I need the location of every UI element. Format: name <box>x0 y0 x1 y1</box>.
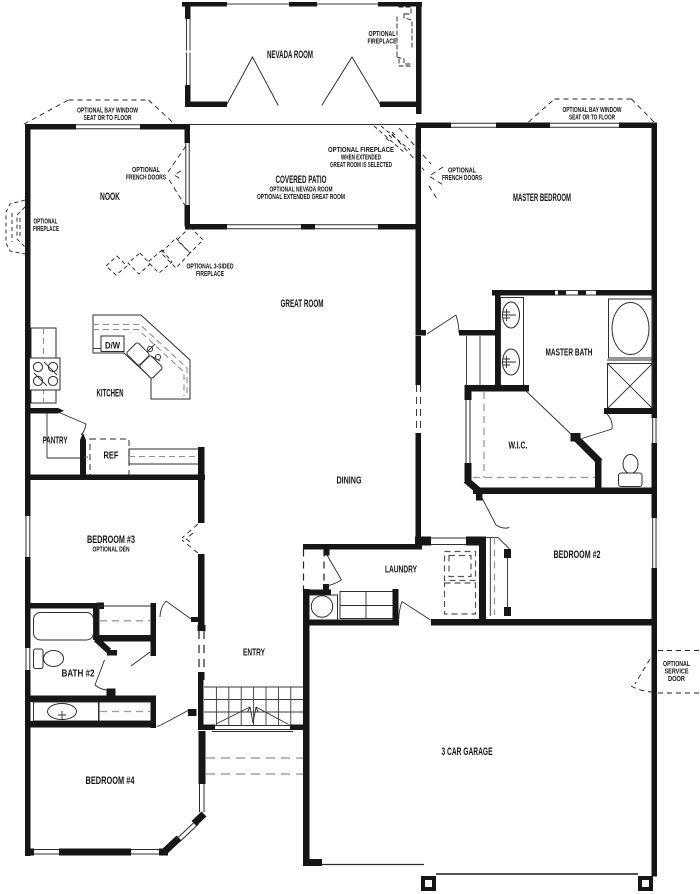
svg-text:W.I.C.: W.I.C. <box>509 441 528 452</box>
svg-text:SERVICE: SERVICE <box>665 669 689 676</box>
svg-text:BATH #2: BATH #2 <box>62 669 95 680</box>
svg-text:NOOK: NOOK <box>100 191 120 203</box>
svg-text:3 CAR GARAGE: 3 CAR GARAGE <box>442 746 493 758</box>
svg-text:OPTIONAL FIREPLACE: OPTIONAL FIREPLACE <box>328 147 394 154</box>
svg-text:LAUNDRY: LAUNDRY <box>385 565 417 576</box>
svg-text:REF: REF <box>104 451 119 462</box>
svg-text:FIREPLACE: FIREPLACE <box>368 39 397 46</box>
svg-text:BEDROOM #4: BEDROOM #4 <box>86 775 136 787</box>
svg-text:FRENCH DOORS: FRENCH DOORS <box>126 175 166 182</box>
svg-text:FRENCH DOORS: FRENCH DOORS <box>442 175 482 182</box>
svg-text:OPTIONAL EXTENDED GREAT ROOM: OPTIONAL EXTENDED GREAT ROOM <box>257 194 345 201</box>
svg-text:SEAT OR TO FLOOR: SEAT OR TO FLOOR <box>84 115 132 122</box>
svg-text:MASTER BATH: MASTER BATH <box>546 348 593 359</box>
svg-text:WHEN EXTENDED: WHEN EXTENDED <box>341 155 381 162</box>
svg-text:PANTRY: PANTRY <box>43 436 68 447</box>
svg-text:D/W: D/W <box>105 341 120 352</box>
svg-text:OPTIONAL BAY WINDOW: OPTIONAL BAY WINDOW <box>563 107 622 114</box>
svg-text:DINING: DINING <box>337 476 362 487</box>
svg-text:GREAT ROOM: GREAT ROOM <box>281 298 324 310</box>
svg-text:OPTIONAL: OPTIONAL <box>34 219 58 226</box>
svg-text:SEAT OR TO FLOOR: SEAT OR TO FLOOR <box>569 115 615 122</box>
svg-text:COVERED PATIO: COVERED PATIO <box>276 174 327 186</box>
svg-text:MASTER BEDROOM: MASTER BEDROOM <box>513 192 571 204</box>
svg-text:NEVADA ROOM: NEVADA ROOM <box>267 49 313 61</box>
svg-text:OPTIONAL: OPTIONAL <box>663 661 691 668</box>
svg-text:FIREPLACE: FIREPLACE <box>33 226 59 233</box>
svg-text:OPTIONAL 3-SIDED: OPTIONAL 3-SIDED <box>187 264 234 271</box>
svg-text:OPTIONAL: OPTIONAL <box>448 168 477 175</box>
svg-text:ENTRY: ENTRY <box>243 648 265 659</box>
svg-text:OPTIONAL: OPTIONAL <box>369 31 397 38</box>
svg-text:OPTIONAL: OPTIONAL <box>132 167 161 174</box>
svg-text:OPTIONAL BAY WINDOW: OPTIONAL BAY WINDOW <box>77 108 138 115</box>
svg-text:OPTIONAL NEVADA ROOM: OPTIONAL NEVADA ROOM <box>270 187 333 194</box>
svg-text:BEDROOM #2: BEDROOM #2 <box>554 549 601 561</box>
svg-text:KITCHEN: KITCHEN <box>97 388 124 400</box>
svg-text:GREAT ROOM IS SELECTED: GREAT ROOM IS SELECTED <box>330 162 392 169</box>
svg-text:OPTIONAL DEN: OPTIONAL DEN <box>93 547 130 554</box>
svg-text:FIREPLACE: FIREPLACE <box>196 271 224 278</box>
svg-text:DOOR: DOOR <box>668 676 685 683</box>
svg-text:BEDROOM #3: BEDROOM #3 <box>87 534 135 546</box>
